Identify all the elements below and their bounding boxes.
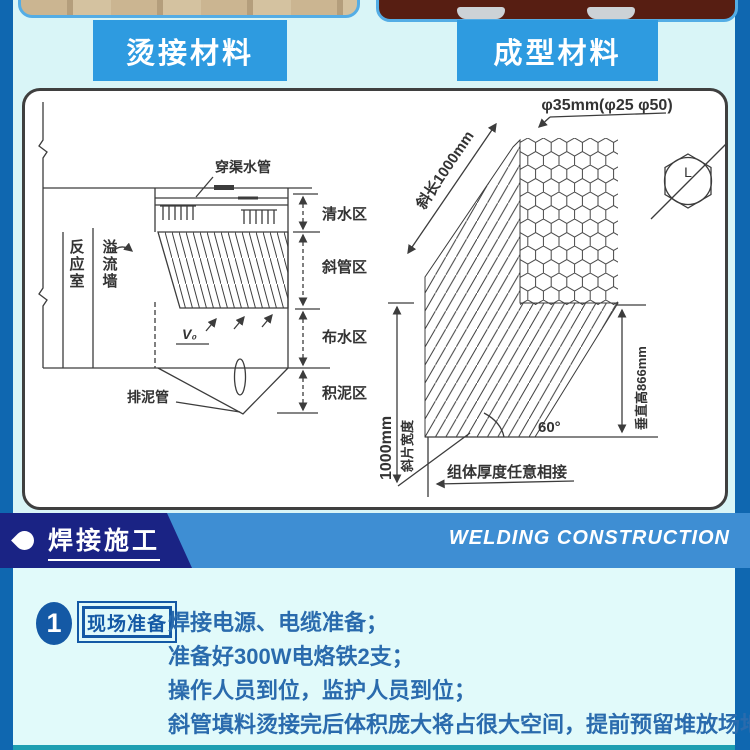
reaction-room-label: 反应室 [69, 239, 84, 290]
hex-detail-l-label: L [684, 164, 692, 180]
step-description: 焊接电源、电缆准备； 准备好300W电烙铁2支； 操作人员到位，监护人员到位； … [168, 606, 750, 742]
step-tag-label: 现场准备 [82, 606, 172, 638]
v0-velocity-label: V₀ [182, 326, 197, 342]
formed-tube-sample [587, 7, 635, 19]
hot-weld-material-photo [18, 0, 360, 18]
step-line: 操作人员到位，监护人员到位； [168, 674, 750, 708]
settling-tank-diagram: 穿渠水管 清水区 斜管区 布水区 积泥区 反应室 溢流墙 V₀ 排泥管 [22, 88, 728, 510]
formed-material-label: 成型材料 [457, 20, 658, 81]
sheet-width-text-label: 斜片宽度 [400, 419, 415, 473]
vertical-height-label: 垂直高866mm [634, 346, 649, 430]
bottom-strip [13, 745, 735, 750]
angle-label: 60° [538, 419, 561, 436]
banner-title: 焊接施工 [48, 521, 160, 561]
distribution-zone-label: 布水区 [322, 328, 367, 346]
step-number-badge: 1 [36, 602, 72, 645]
diagram-panel: 穿渠水管 清水区 斜管区 布水区 积泥区 反应室 溢流墙 V₀ 排泥管 [22, 88, 728, 510]
banner-left-trapezoid: 焊接施工 [0, 513, 192, 568]
step-line: 焊接电源、电缆准备； [168, 606, 750, 640]
tube-diameter-label: φ35mm(φ25 φ50) [541, 97, 672, 114]
overflow-wall-label: 溢流墙 [102, 238, 117, 290]
step-line: 准备好300W电烙铁2支； [168, 640, 750, 674]
step-tag-box: 现场准备 [77, 601, 177, 643]
formed-material-photo [376, 0, 738, 22]
water-drop-icon [11, 527, 38, 554]
module-thickness-note: 组体厚度任意相接 [447, 463, 567, 481]
sludge-zone-label: 积泥区 [322, 384, 367, 402]
step-line: 斜管填料烫接完后体积庞大将占很大空间，提前预留堆放场地。 [168, 708, 750, 742]
welding-construction-banner: 焊接施工 WELDING CONSTRUCTION [0, 513, 750, 568]
construction-steps-section: 1 现场准备 焊接电源、电缆准备； 准备好300W电烙铁2支； 操作人员到位，监… [13, 568, 735, 750]
left-edge-stripe [0, 0, 13, 750]
formed-tube-sample [457, 7, 505, 19]
sheet-width-value-label: 1000mm [378, 416, 395, 480]
tube-zone-label: 斜管区 [321, 258, 367, 276]
banner-subtitle: WELDING CONSTRUCTION [449, 527, 730, 550]
sludge-pipe-label: 排泥管 [127, 389, 169, 405]
perforated-pipe-label: 穿渠水管 [215, 159, 271, 175]
page: 烫接材料 成型材料 [0, 0, 750, 750]
clear-water-zone-label: 清水区 [322, 205, 367, 223]
hot-weld-material-label: 烫接材料 [93, 20, 287, 81]
